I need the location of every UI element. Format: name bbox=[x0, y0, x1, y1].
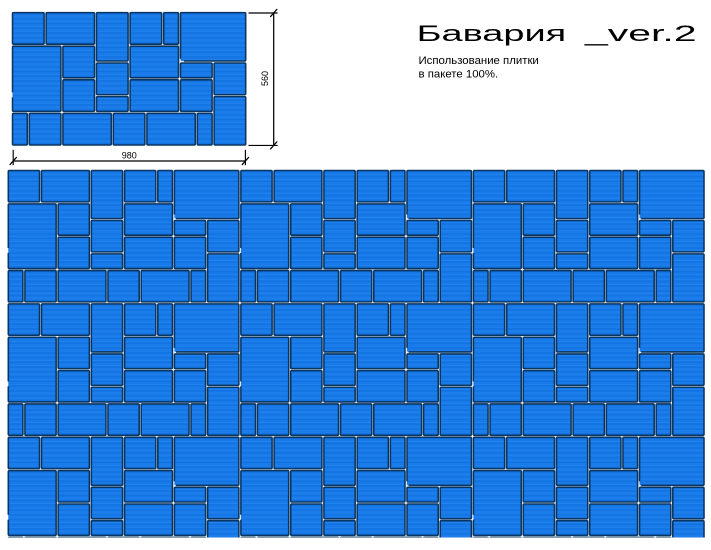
svg-text:_ver.2: _ver.2 bbox=[584, 21, 697, 46]
svg-text:в пакете 100%.: в пакете 100%. bbox=[419, 69, 499, 81]
svg-text:980: 980 bbox=[122, 151, 137, 161]
svg-text:Использование плитки: Использование плитки bbox=[419, 55, 539, 67]
svg-text:560: 560 bbox=[260, 71, 270, 86]
svg-text:Бавария: Бавария bbox=[417, 21, 567, 46]
